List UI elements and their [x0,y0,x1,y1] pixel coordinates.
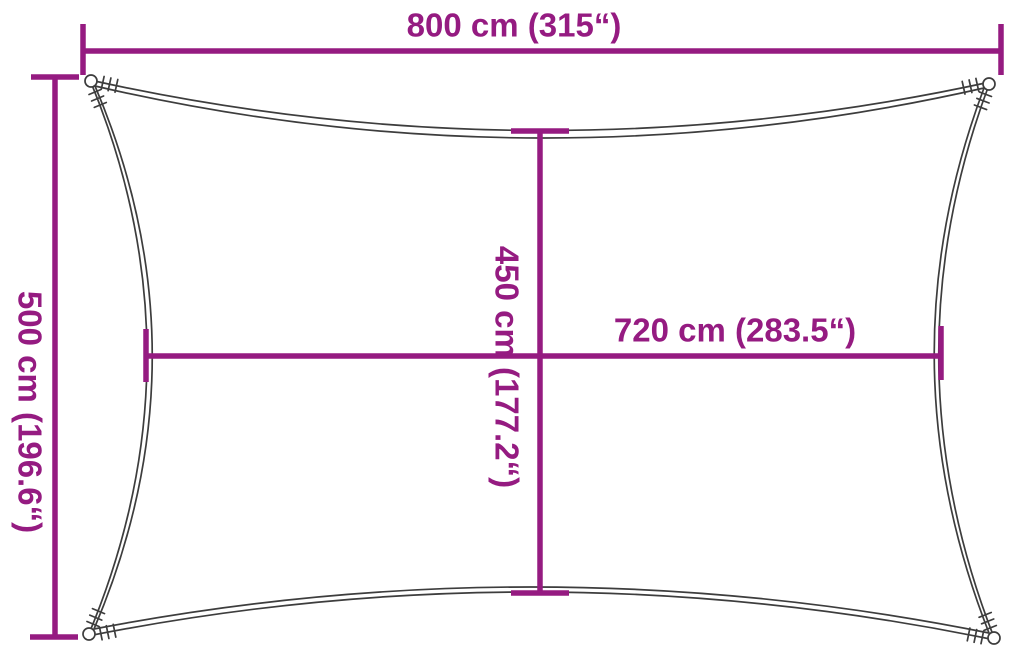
corner-ring-bottom-right [988,632,1000,644]
overall-height-label: 500 cm (196.6“) [14,291,47,533]
inner-height-label: 450 cm (177.2“) [491,246,524,488]
corner-ring-bottom-left [83,628,95,640]
overall-width-label: 800 cm (315“) [407,9,622,42]
inner-width-label: 720 cm (283.5“) [614,314,856,347]
corner-ring-top-left [85,75,97,87]
corner-ring-top-right [983,78,995,90]
shade-sail-dimension-diagram: 800 cm (315“) 500 cm (196.6“) 450 cm (17… [0,0,1020,662]
